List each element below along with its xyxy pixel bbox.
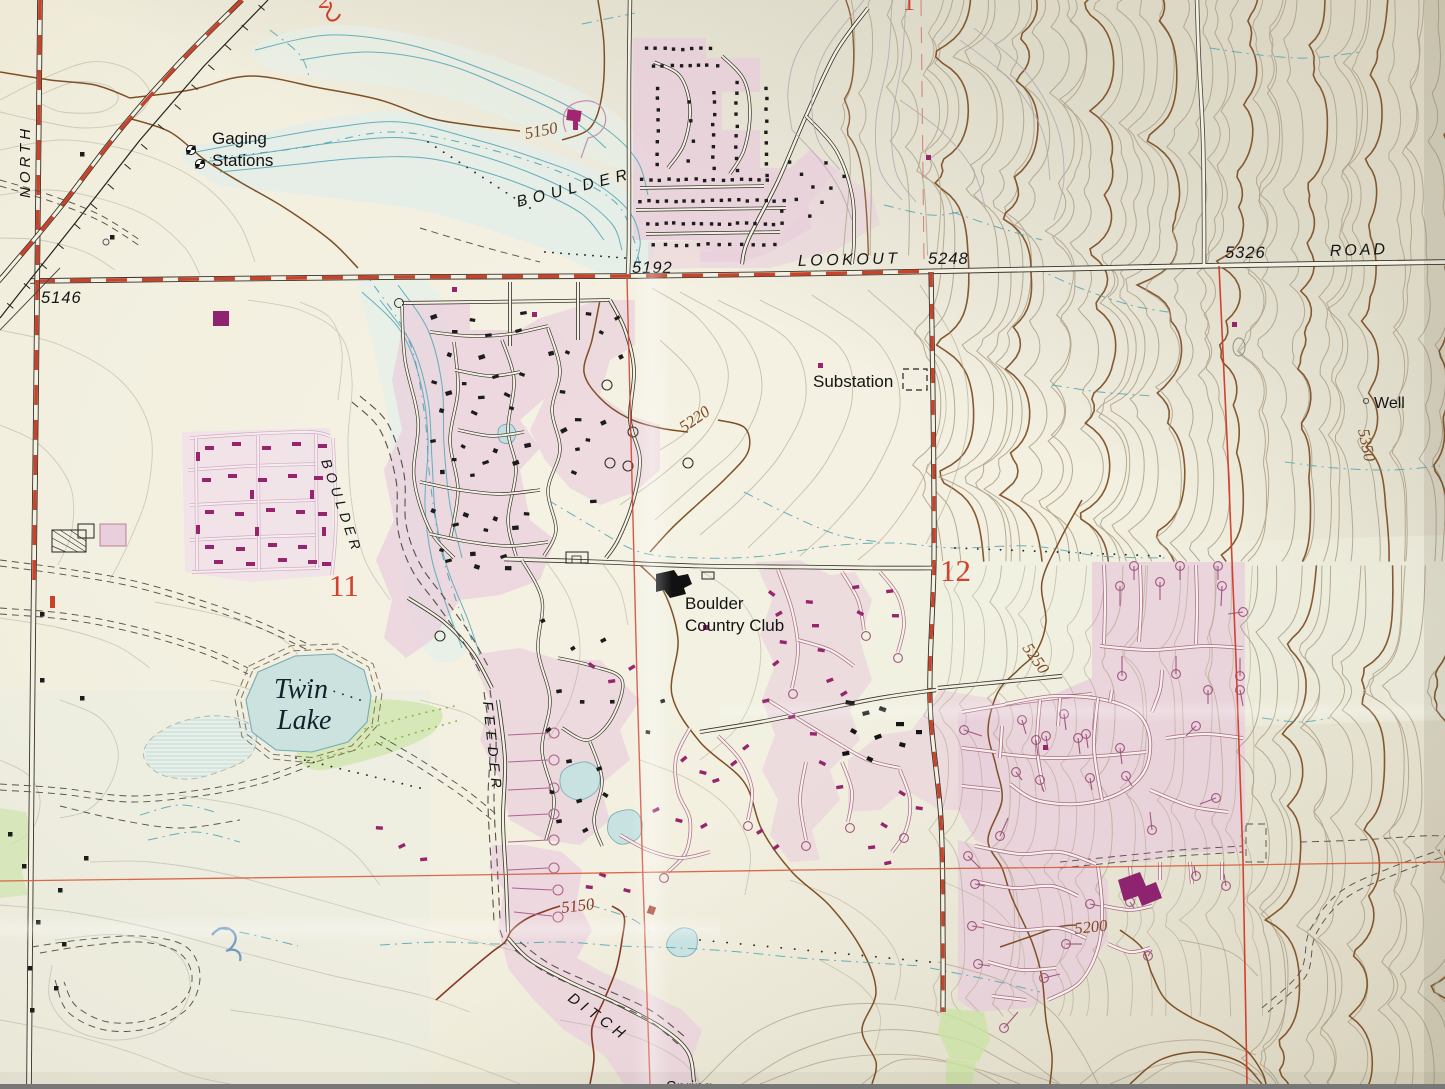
- svg-text:Lake: Lake: [276, 705, 331, 736]
- svg-text:Gaging: Gaging: [212, 129, 267, 148]
- svg-text:NORTH: NORTH: [17, 125, 34, 198]
- svg-text:Twin: Twin: [274, 674, 328, 705]
- svg-text:Substation: Substation: [813, 372, 893, 391]
- svg-text:5326: 5326: [1225, 244, 1266, 262]
- svg-text:Country Club: Country Club: [685, 616, 784, 635]
- svg-text:Well: Well: [1374, 395, 1405, 412]
- svg-text:ROAD: ROAD: [1330, 241, 1389, 260]
- svg-text:12: 12: [940, 553, 971, 588]
- svg-text:5146: 5146: [41, 289, 82, 307]
- svg-text:1: 1: [903, 0, 915, 16]
- svg-text:LOOKOUT: LOOKOUT: [798, 250, 901, 270]
- svg-text:5248: 5248: [928, 250, 969, 268]
- svg-text:5200: 5200: [1073, 916, 1109, 938]
- svg-text:2: 2: [318, 0, 330, 14]
- svg-text:Stations: Stations: [212, 151, 273, 170]
- svg-text:Boulder: Boulder: [685, 594, 744, 613]
- svg-text:11: 11: [329, 568, 359, 603]
